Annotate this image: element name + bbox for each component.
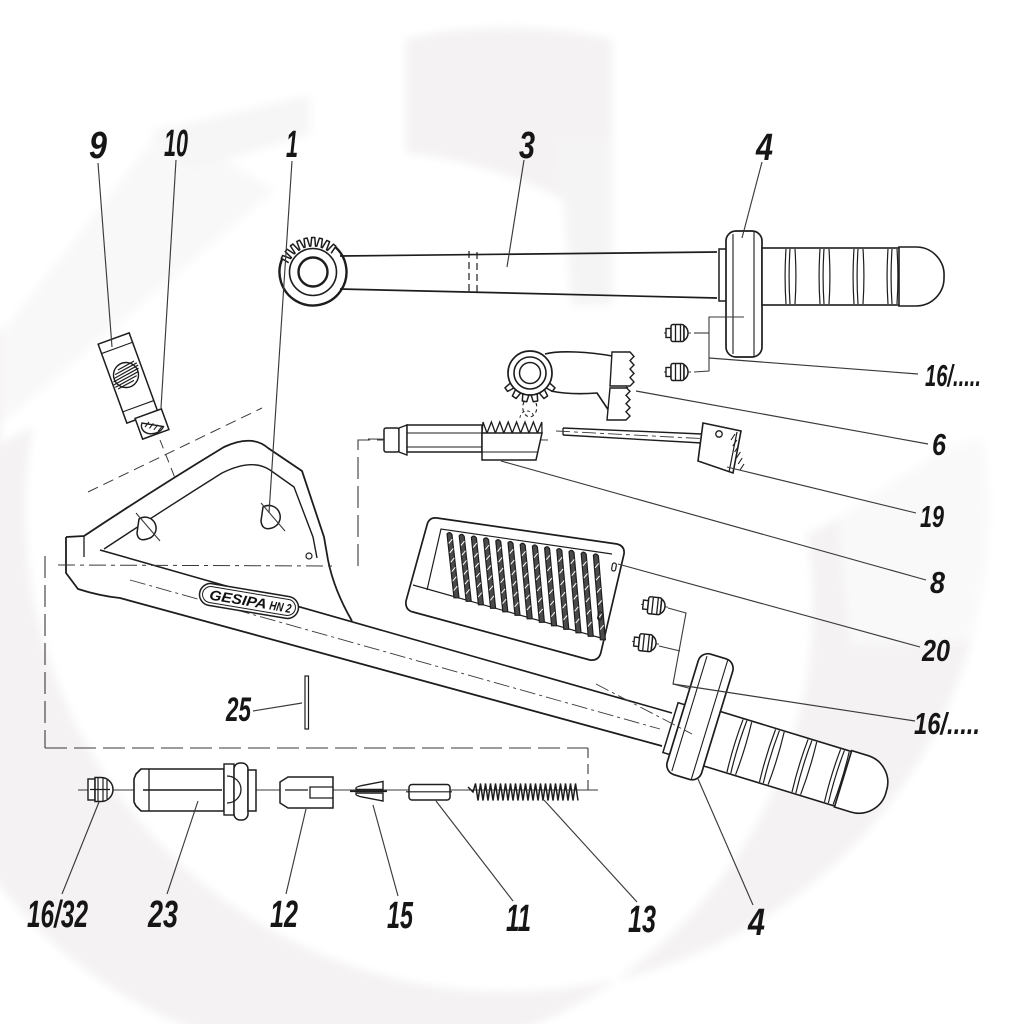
svg-text:1: 1 [286,124,298,166]
svg-text:8: 8 [930,565,946,600]
svg-text:10: 10 [164,123,188,165]
svg-text:16/.....: 16/..... [914,706,980,741]
svg-text:11: 11 [506,898,531,940]
svg-text:6: 6 [932,427,947,462]
svg-text:16/32: 16/32 [27,894,88,936]
svg-text:15: 15 [387,895,414,937]
svg-text:20: 20 [921,633,950,668]
svg-text:3: 3 [519,125,535,167]
svg-text:16/.....: 16/..... [925,358,981,393]
svg-text:4: 4 [747,902,765,944]
svg-text:25: 25 [225,691,251,729]
svg-text:19: 19 [920,499,945,534]
svg-text:9: 9 [89,125,107,167]
svg-text:4: 4 [755,127,773,169]
svg-text:12: 12 [270,894,298,936]
svg-text:13: 13 [628,899,656,941]
svg-text:23: 23 [147,894,178,936]
